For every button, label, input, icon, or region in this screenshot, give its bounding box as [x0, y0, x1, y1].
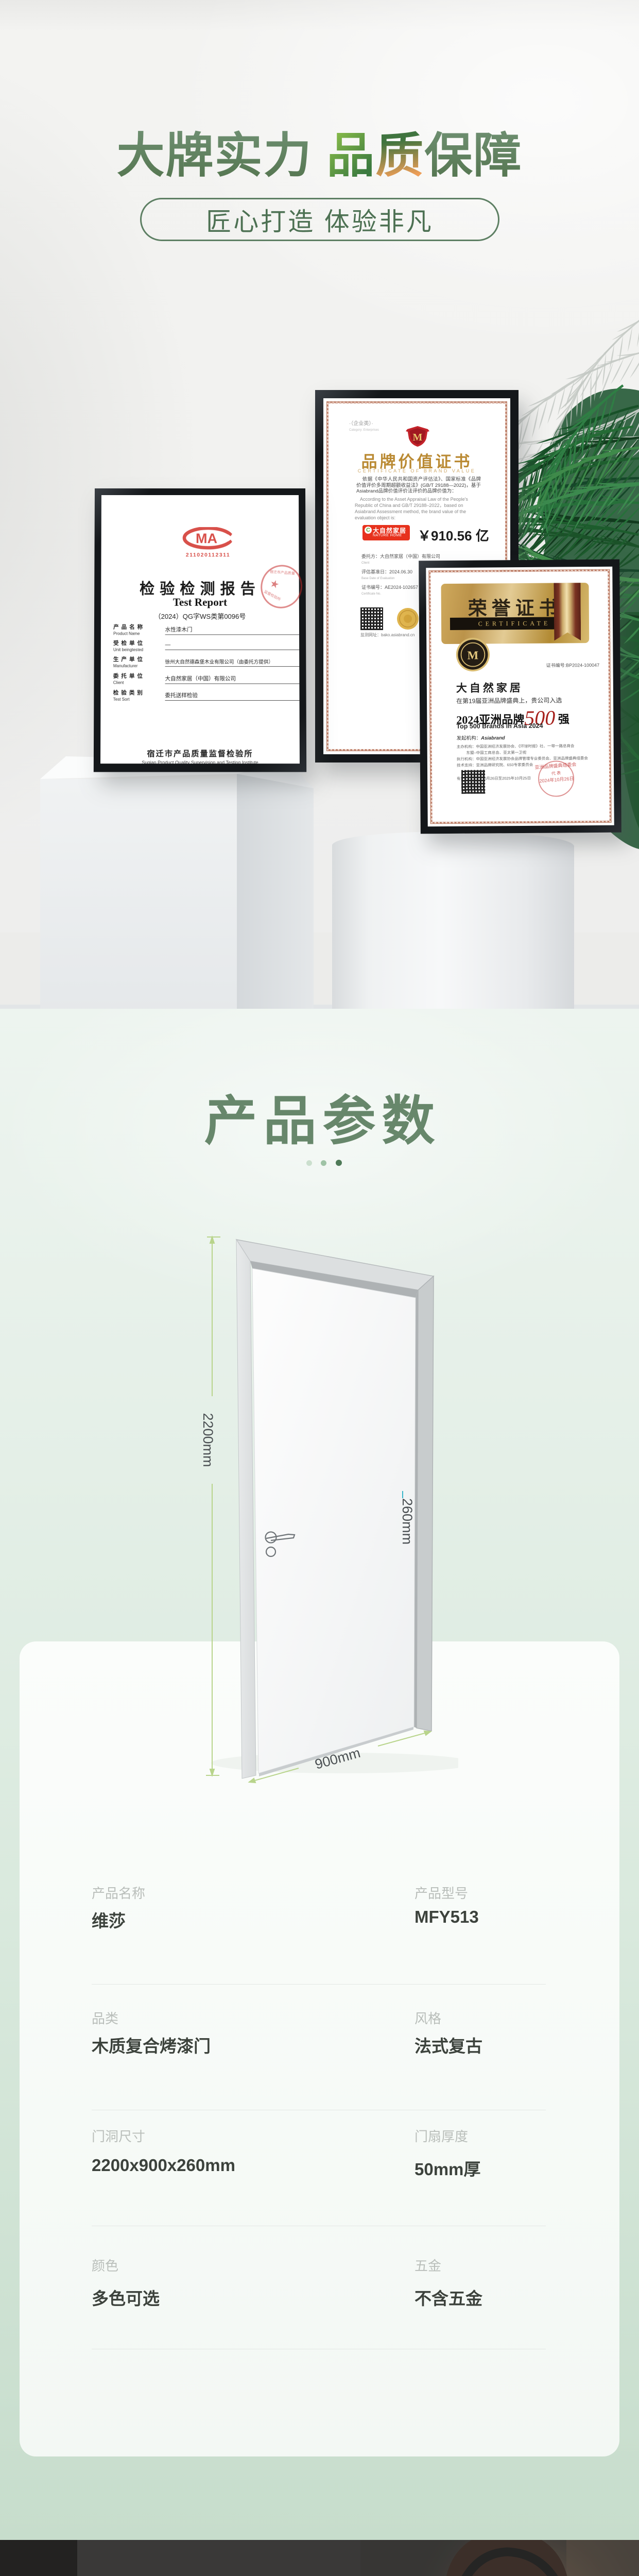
svg-text:211020112311: 211020112311 — [186, 552, 230, 558]
svg-text:MA: MA — [196, 531, 217, 546]
svg-text:260mm: 260mm — [400, 1498, 415, 1545]
svg-text:M: M — [413, 432, 423, 443]
svg-text:2200mm: 2200mm — [200, 1413, 216, 1467]
svg-text:M: M — [468, 649, 479, 662]
